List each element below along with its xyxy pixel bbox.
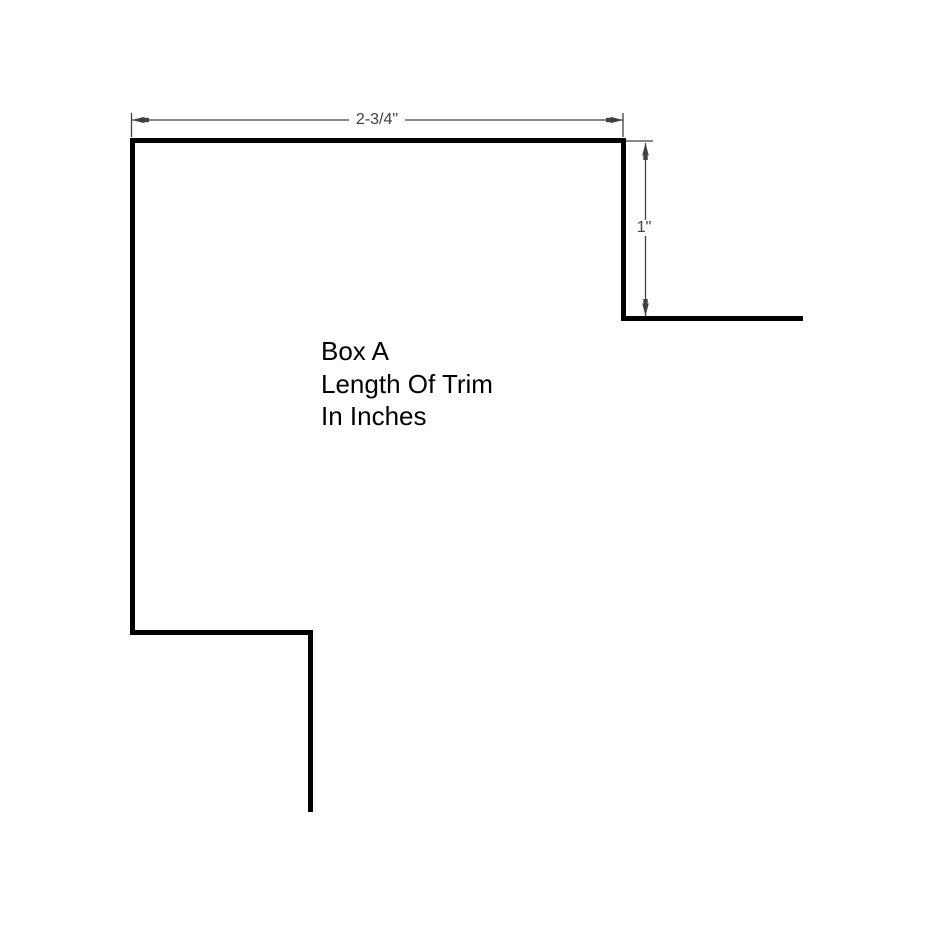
width-arrow-left-tail [141,118,149,122]
width-arrow-right-tail [606,118,614,122]
caption-line-2: Length Of Trim [321,368,493,401]
height-dimension-label: 1" [630,220,659,236]
caption-block: Box A Length Of Trim In Inches [321,335,493,433]
trim-profile-drawing [0,0,933,934]
trim-profile-outline [133,141,804,813]
drawing-canvas: 2-3/4" 1" Box A Length Of Trim In Inches [0,0,933,934]
height-arrow-up-tail [643,152,647,160]
width-dimension-label: 2-3/4" [349,112,405,128]
caption-line-1: Box A [321,335,493,368]
caption-line-3: In Inches [321,400,493,433]
height-arrow-down-tail [643,299,647,307]
